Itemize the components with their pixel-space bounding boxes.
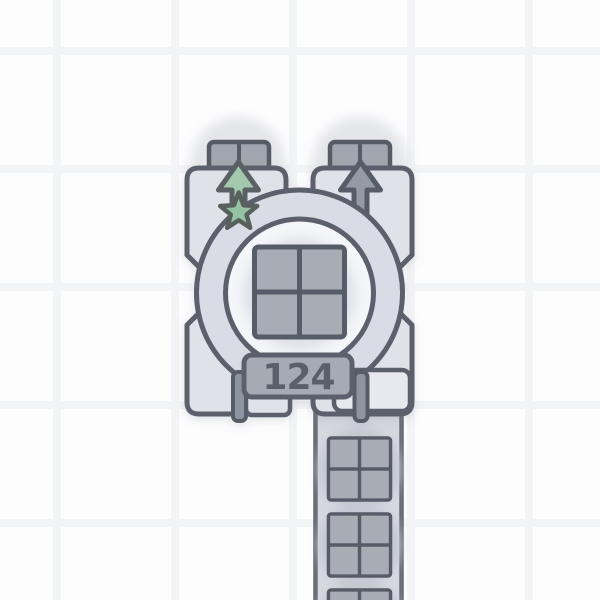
- crate-2x2-icon: [328, 438, 390, 500]
- conveyor-belt[interactable]: [313, 404, 404, 600]
- crate-2x2-icon: [255, 247, 345, 337]
- scene-canvas: 124: [0, 0, 600, 600]
- counter-badge: 124: [244, 355, 352, 398]
- leg-right: [355, 372, 368, 421]
- counter-value: 124: [262, 357, 334, 398]
- crate-2x2-icon: [328, 514, 390, 576]
- extractor-machine[interactable]: 124: [187, 119, 412, 421]
- game-scene: 124: [0, 0, 600, 600]
- crate-2x2-icon: [328, 590, 390, 600]
